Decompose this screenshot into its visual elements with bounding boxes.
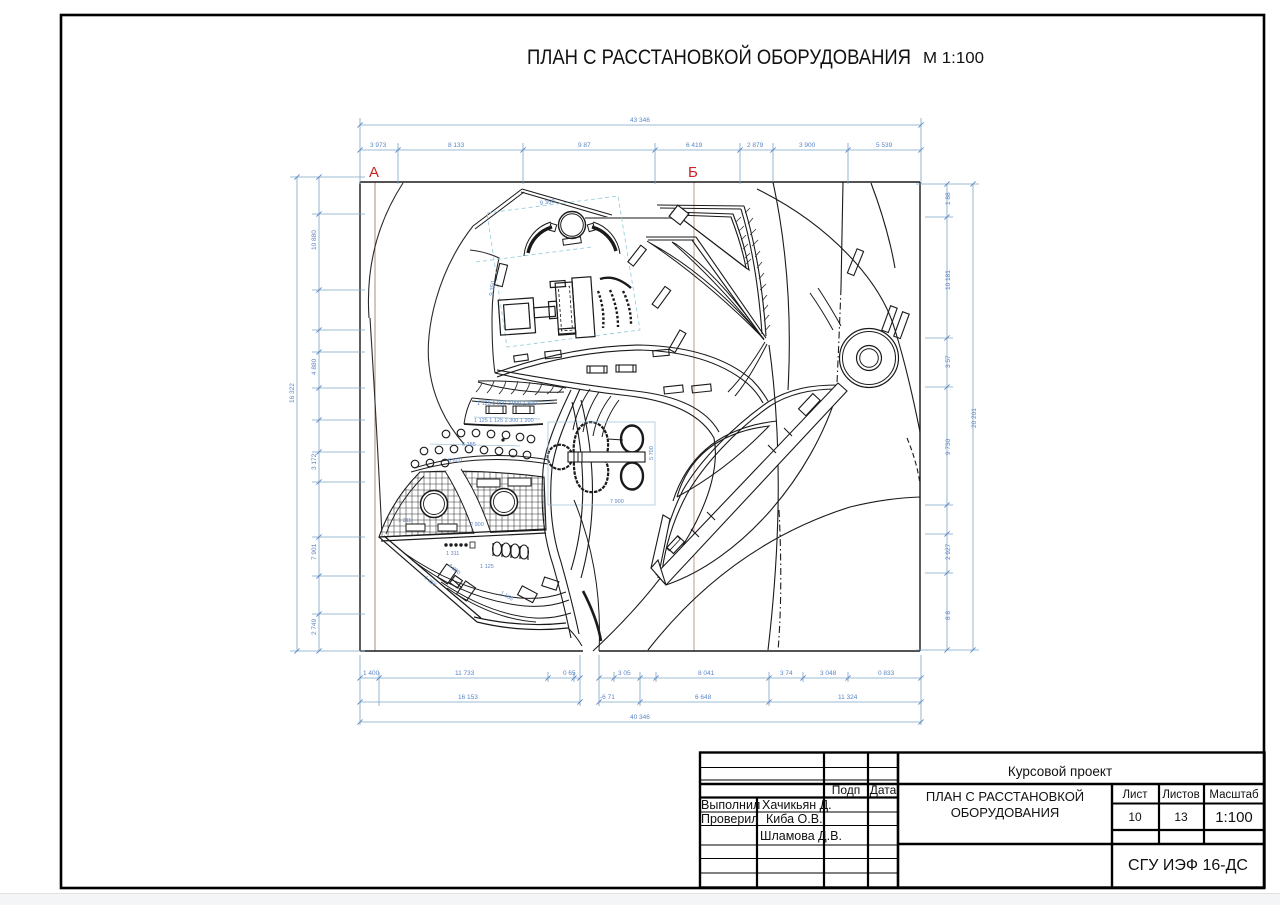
svg-text:3 172: 3 172 xyxy=(311,453,318,470)
svg-text:ПЛАН С РАССТАНОВКОЙ ОБОРУДОВАН: ПЛАН С РАССТАНОВКОЙ ОБОРУДОВАНИЯ xyxy=(527,45,911,69)
svg-text:Лист: Лист xyxy=(1123,789,1149,801)
svg-text:1 250: 1 250 xyxy=(423,575,437,588)
svg-text:3 74: 3 74 xyxy=(780,670,793,677)
svg-text:0 65: 0 65 xyxy=(563,670,576,677)
svg-text:3 973: 3 973 xyxy=(370,142,387,149)
svg-text:6 (01): 6 (01) xyxy=(448,458,463,464)
svg-text:1 88: 1 88 xyxy=(945,192,952,205)
svg-text:10: 10 xyxy=(1128,810,1142,824)
svg-text:9 350: 9 350 xyxy=(489,280,497,296)
svg-text:11 324: 11 324 xyxy=(838,694,858,701)
svg-text:10 181: 10 181 xyxy=(945,270,952,290)
svg-text:6 419: 6 419 xyxy=(686,142,703,149)
svg-text:20 201: 20 201 xyxy=(971,408,978,428)
svg-text:9 87: 9 87 xyxy=(578,142,591,149)
svg-text:ОБОРУДОВАНИЯ: ОБОРУДОВАНИЯ xyxy=(951,805,1060,820)
svg-text:1 125: 1 125 xyxy=(480,564,494,570)
svg-text:2 927: 2 927 xyxy=(945,543,952,560)
svg-text:10 880: 10 880 xyxy=(311,230,318,250)
svg-text:5 539: 5 539 xyxy=(876,142,893,149)
svg-text:3 05: 3 05 xyxy=(618,670,631,677)
svg-text:7 900: 7 900 xyxy=(610,499,624,505)
svg-text:40 346: 40 346 xyxy=(630,714,650,721)
svg-text:2 749: 2 749 xyxy=(311,618,318,635)
svg-text:0 833: 0 833 xyxy=(878,670,895,677)
svg-text:6 648: 6 648 xyxy=(695,694,712,701)
svg-text:1 311: 1 311 xyxy=(446,551,459,557)
svg-text:8 041: 8 041 xyxy=(698,670,715,677)
svg-text:Выполнил: Выполнил xyxy=(701,798,760,812)
svg-text:8 8: 8 8 xyxy=(945,611,952,620)
svg-text:1 125 1 900 2 000 1 50: 1 125 1 900 2 000 1 500 xyxy=(477,401,537,407)
svg-text:16 153: 16 153 xyxy=(458,694,478,701)
svg-text:Подп: Подп xyxy=(832,783,861,797)
svg-text:Хачикьян Д.: Хачикьян Д. xyxy=(762,798,832,812)
svg-text:Киба О.В.: Киба О.В. xyxy=(766,812,823,826)
svg-text:1:100: 1:100 xyxy=(1215,809,1253,826)
svg-text:СГУ ИЭФ 16-ДС: СГУ ИЭФ 16-ДС xyxy=(1128,857,1248,874)
svg-text:9 730: 9 730 xyxy=(945,438,952,455)
svg-text:1 400: 1 400 xyxy=(363,670,380,677)
svg-text:9 350: 9 350 xyxy=(539,199,555,207)
svg-text:3 048: 3 048 xyxy=(820,670,837,677)
svg-text:ПЛАН С РАССТАНОВКОЙ: ПЛАН С РАССТАНОВКОЙ xyxy=(926,789,1084,804)
svg-text:Проверил: Проверил xyxy=(701,812,759,826)
svg-text:-6 71: -6 71 xyxy=(600,694,615,701)
svg-text:13: 13 xyxy=(1174,810,1188,824)
svg-text:Курсовой проект: Курсовой проект xyxy=(1008,764,1112,779)
svg-text:М 1:100: М 1:100 xyxy=(923,50,984,67)
svg-text:4 880: 4 880 xyxy=(311,358,318,375)
svg-text:1 125 1 125 2 300 1 2: 1 125 1 125 2 300 1 200 xyxy=(474,418,534,424)
svg-text:3 57: 3 57 xyxy=(945,355,952,368)
svg-text:Шламова Д.В.: Шламова Д.В. xyxy=(760,829,842,843)
svg-text:Дата: Дата xyxy=(870,783,897,797)
svg-text:43 346: 43 346 xyxy=(630,117,650,124)
svg-text:1 155: 1 155 xyxy=(499,591,514,603)
svg-text:16 322: 16 322 xyxy=(289,383,296,403)
svg-text:2 879: 2 879 xyxy=(747,142,764,149)
svg-text:11 733: 11 733 xyxy=(455,670,475,677)
svg-text:Листов: Листов xyxy=(1162,789,1199,801)
svg-text:2 900: 2 900 xyxy=(470,522,484,528)
svg-text:3 900: 3 900 xyxy=(799,142,816,149)
svg-text:А: А xyxy=(369,164,379,181)
svg-text:8 133: 8 133 xyxy=(448,142,465,149)
svg-text:Масштаб: Масштаб xyxy=(1209,789,1259,801)
svg-text:5 700: 5 700 xyxy=(649,446,655,460)
svg-text:Б: Б xyxy=(688,164,698,181)
svg-text:1 311: 1 311 xyxy=(398,518,411,524)
svg-text:7 901: 7 901 xyxy=(311,543,318,560)
